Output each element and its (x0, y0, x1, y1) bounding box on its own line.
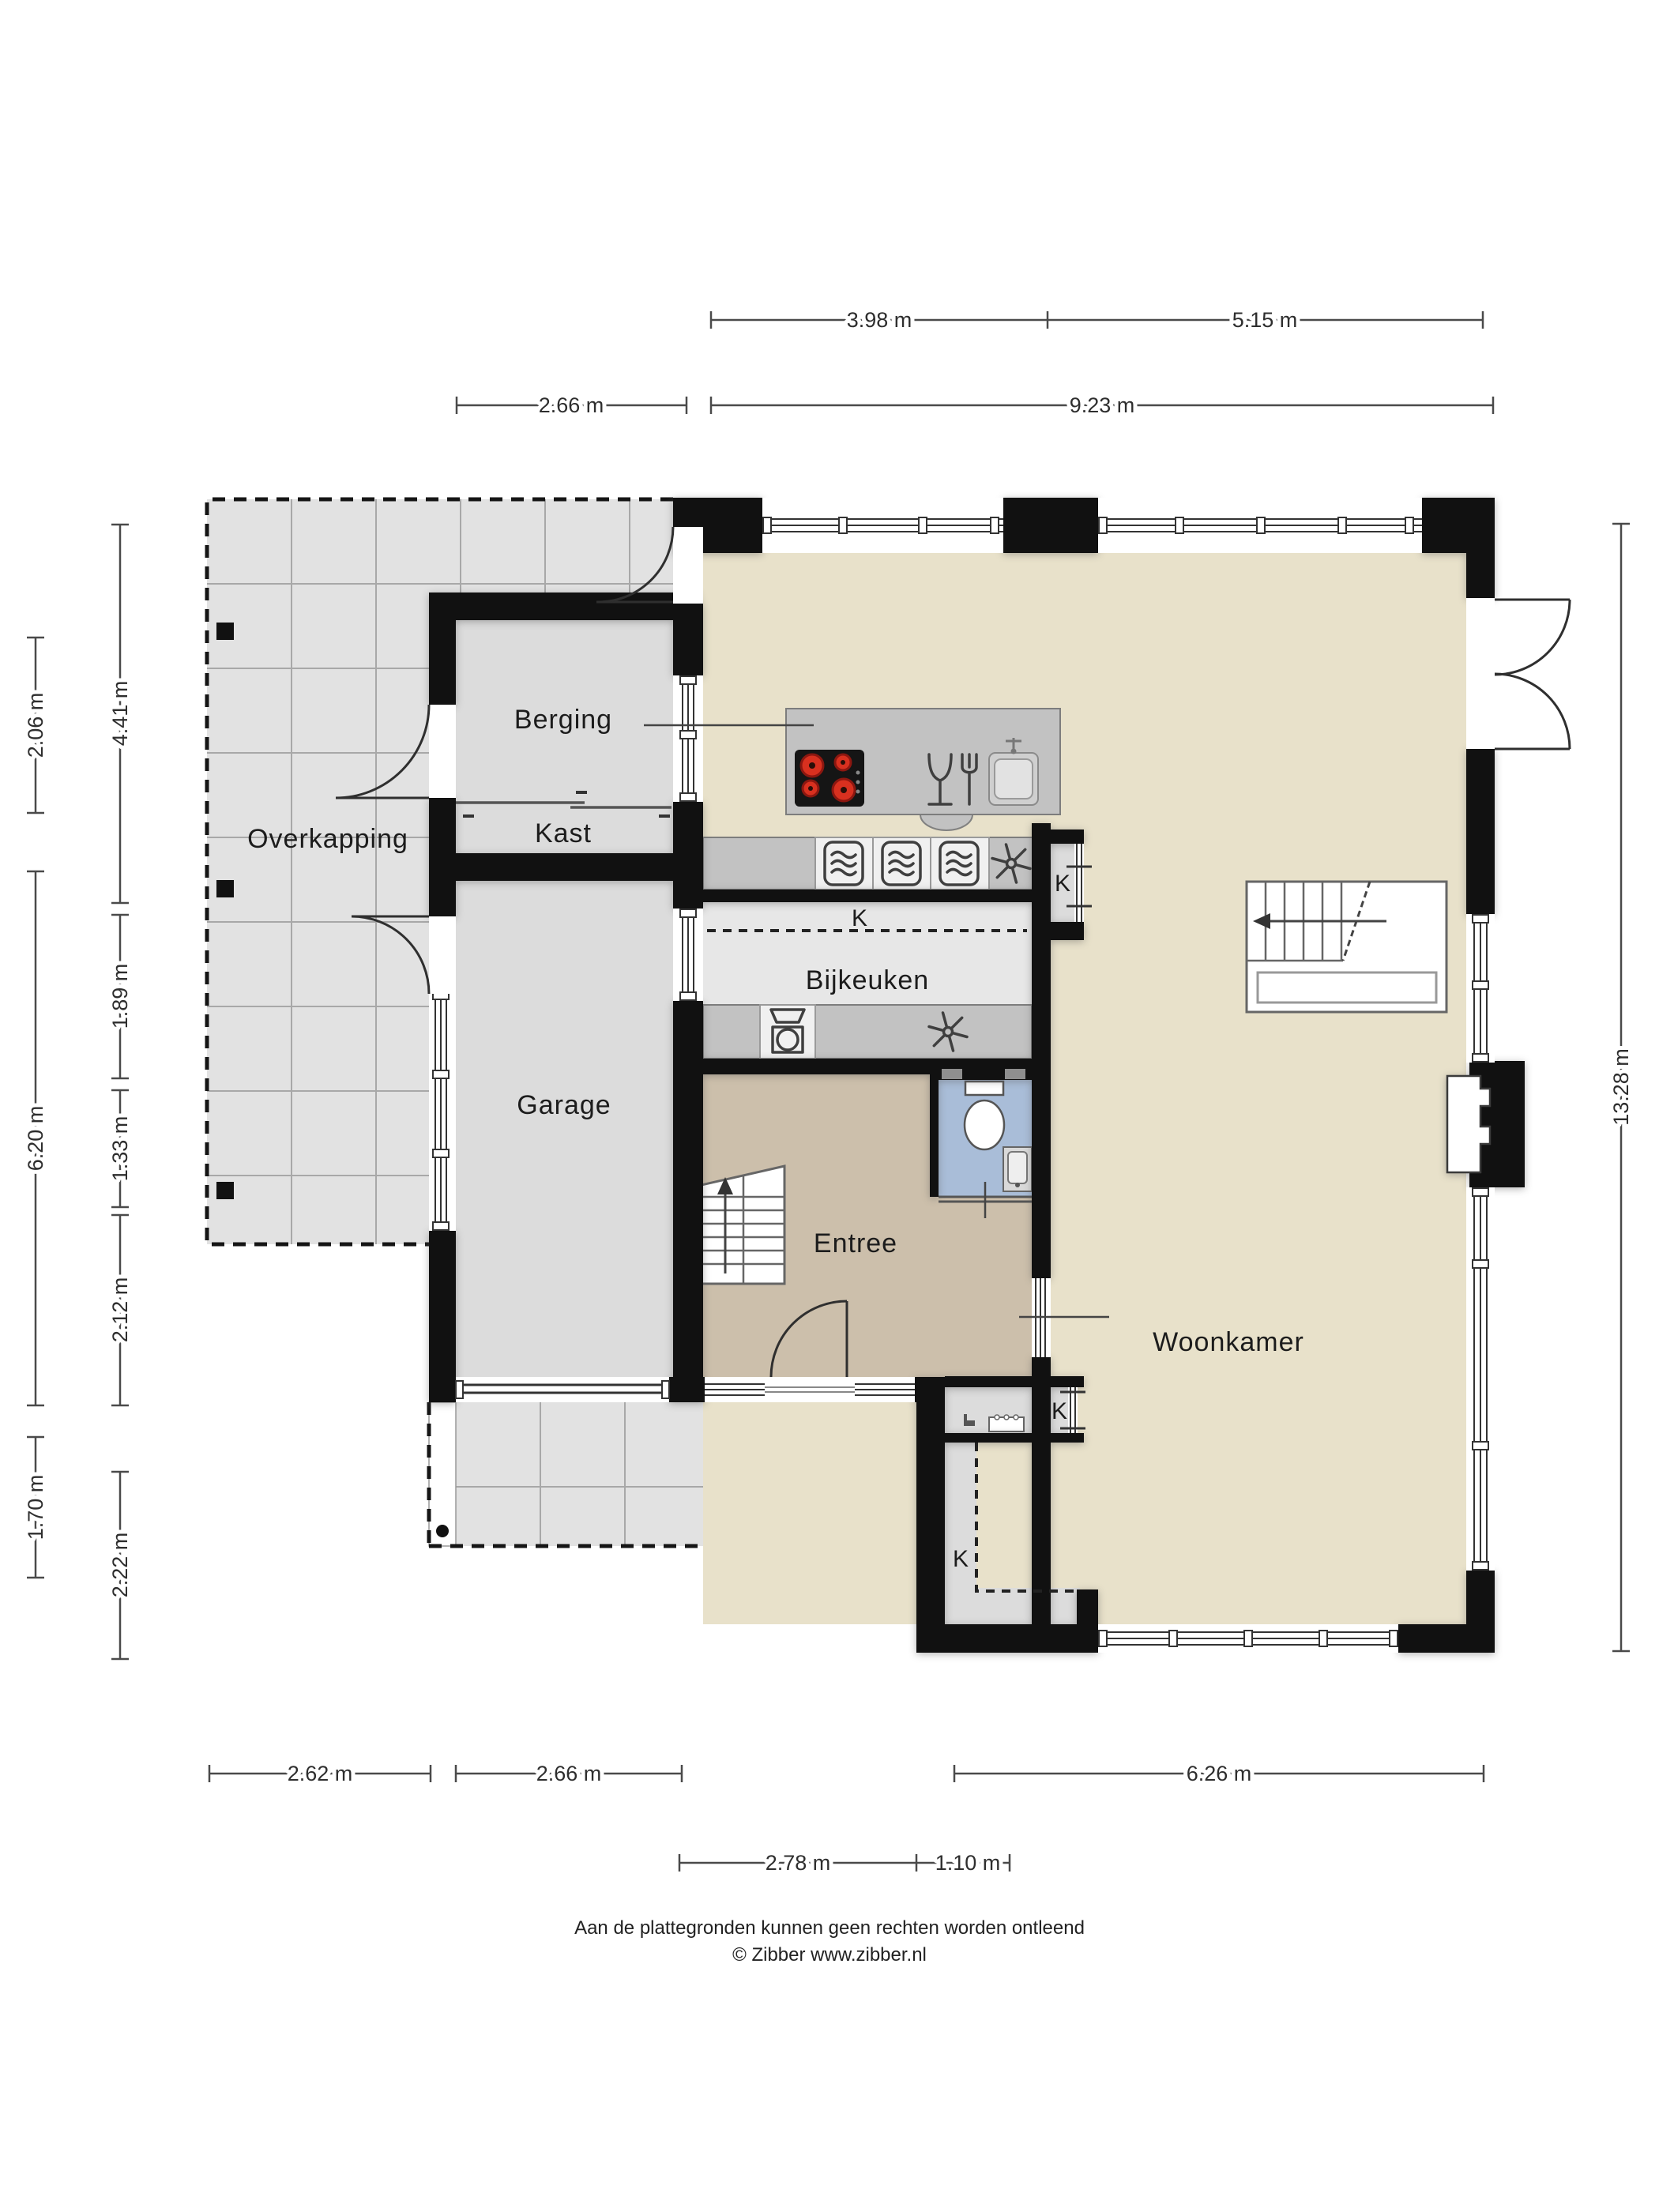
stairs-entree (702, 1166, 784, 1284)
patio-post-dot (436, 1525, 449, 1537)
window-top-2 (1098, 498, 1422, 553)
dim-label: 2.66 m (536, 1762, 602, 1785)
overkapping-post (216, 623, 234, 640)
dim-left-outer: 2.06 m 6.20 m 1.70 m (24, 638, 47, 1578)
window-bottom (1098, 1624, 1398, 1653)
dim-label: 5.15 m (1232, 308, 1298, 332)
tap-icon-spout (964, 1414, 967, 1421)
window-entree-south (705, 1377, 915, 1402)
dim-right: 13.28 m (1609, 524, 1633, 1651)
dim-label: 9.23 m (1070, 393, 1135, 417)
room-label-overkapping: Overkapping (247, 824, 408, 854)
french-doors-woonkamer (1466, 598, 1570, 749)
room-label-entree: Entree (814, 1228, 897, 1258)
dim-label: 2.62 m (288, 1762, 353, 1785)
front-door-opening (765, 1377, 855, 1402)
dim-label: 2.78 m (766, 1851, 831, 1875)
room-label-woonkamer: Woonkamer (1153, 1327, 1304, 1357)
dim-label: 6.20 m (24, 1106, 47, 1172)
dim-label: 1.10 m (935, 1851, 1001, 1875)
dim-label: 1.33 m (108, 1116, 132, 1182)
room-label-berging: Berging (514, 705, 612, 735)
kitchen-counter (703, 837, 1034, 890)
floor-plan: Overkapping Berging Kast Garage Bijkeuke… (0, 0, 1659, 2212)
toilet-sink-tap (1015, 1183, 1020, 1187)
footer-disclaimer: Aan de plattegronden kunnen geen rechten… (574, 1917, 1085, 1939)
dim-label: 2.22 m (108, 1533, 132, 1598)
dim-label: 2.66 m (539, 393, 604, 417)
bijkeuken-counter (703, 1005, 1032, 1059)
dim-left-inner: 4.41 m 1.89 m 1.33 m 2.12 m 2.22 m (108, 525, 132, 1659)
room-label-garage: Garage (517, 1090, 611, 1120)
dim-label: 2.12 m (108, 1277, 132, 1343)
dim-label: 13.28 m (1609, 1048, 1633, 1126)
counter-bottom (703, 1005, 1032, 1059)
dim-top-row2: 2.66 m 9.23 m (457, 393, 1493, 417)
overkapping-post (216, 880, 234, 897)
tap-icon (964, 1420, 975, 1426)
closet-label-bijkeuken: K (852, 905, 867, 931)
dim-label: 1.89 m (108, 964, 132, 1029)
dim-bottom-row1: 2.62 m 2.66 m 6.26 m (209, 1762, 1484, 1785)
dim-label: 1.70 m (24, 1475, 47, 1540)
room-label-kast: Kast (535, 818, 592, 848)
toilet-bowl-icon (965, 1100, 1004, 1149)
stairs-woonkamer (1247, 882, 1446, 1012)
toilet-sink-basin (1008, 1152, 1027, 1183)
dim-bottom-row2: 2.78 m 1.10 m (679, 1851, 1010, 1875)
overkapping-post (216, 1182, 234, 1199)
patio-side-strip (429, 1402, 456, 1546)
closet-label-k3: K (953, 1546, 969, 1572)
garage-door (456, 1377, 669, 1402)
window-top-1 (762, 498, 1003, 553)
toilet-cistern (965, 1082, 1003, 1095)
room-label-bijkeuken: Bijkeuken (806, 965, 929, 995)
dim-label: 2.06 m (24, 693, 47, 758)
dim-label: 3.98 m (847, 308, 912, 332)
floor-plan-page: Overkapping Berging Kast Garage Bijkeuke… (0, 0, 1659, 2212)
door-garage-bijkeuken (673, 908, 703, 1001)
room-floor-garage (456, 881, 673, 1377)
dim-label: 6.26 m (1187, 1762, 1252, 1785)
footer-copyright: © Zibber www.zibber.nl (732, 1944, 927, 1966)
kitchen-island (786, 709, 1060, 830)
cooktop-icon (795, 750, 864, 807)
dim-label: 4.41 m (108, 681, 132, 747)
fireplace-chimney (1447, 1061, 1525, 1187)
dim-top-row1: 3.98 m 5.15 m (711, 308, 1483, 332)
stair-void (1258, 972, 1436, 1003)
footer: Aan de plattegronden kunnen geen rechten… (574, 1917, 1085, 1966)
window-right-lower (1466, 1187, 1495, 1571)
window-right-upper (1466, 914, 1495, 1063)
closet-label-k2: K (1051, 1398, 1067, 1424)
closet-label-k1: K (1055, 871, 1070, 897)
